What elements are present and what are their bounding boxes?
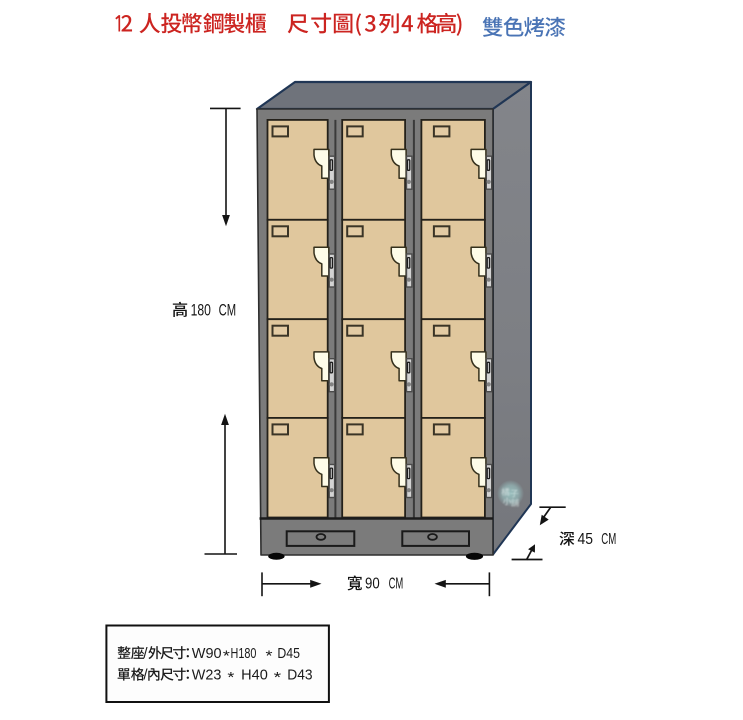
svg-text:45: 45 [578,531,594,548]
svg-text:W90: W90 [192,645,222,662]
svg-text:CM: CM [389,575,404,592]
svg-text:CM: CM [219,301,237,320]
svg-text:*: * [266,647,273,664]
svg-text:*: * [274,669,282,686]
svg-text:W23: W23 [192,667,222,684]
svg-text:CM: CM [601,531,616,548]
svg-text:180: 180 [191,301,211,320]
svg-text:*: * [227,669,234,686]
svg-text:D45: D45 [277,645,300,662]
svg-text:D43: D43 [287,667,312,684]
svg-text:90: 90 [365,575,380,592]
svg-text:*: * [223,647,230,664]
svg-text:H180: H180 [231,645,257,662]
svg-text:H40: H40 [241,667,268,684]
